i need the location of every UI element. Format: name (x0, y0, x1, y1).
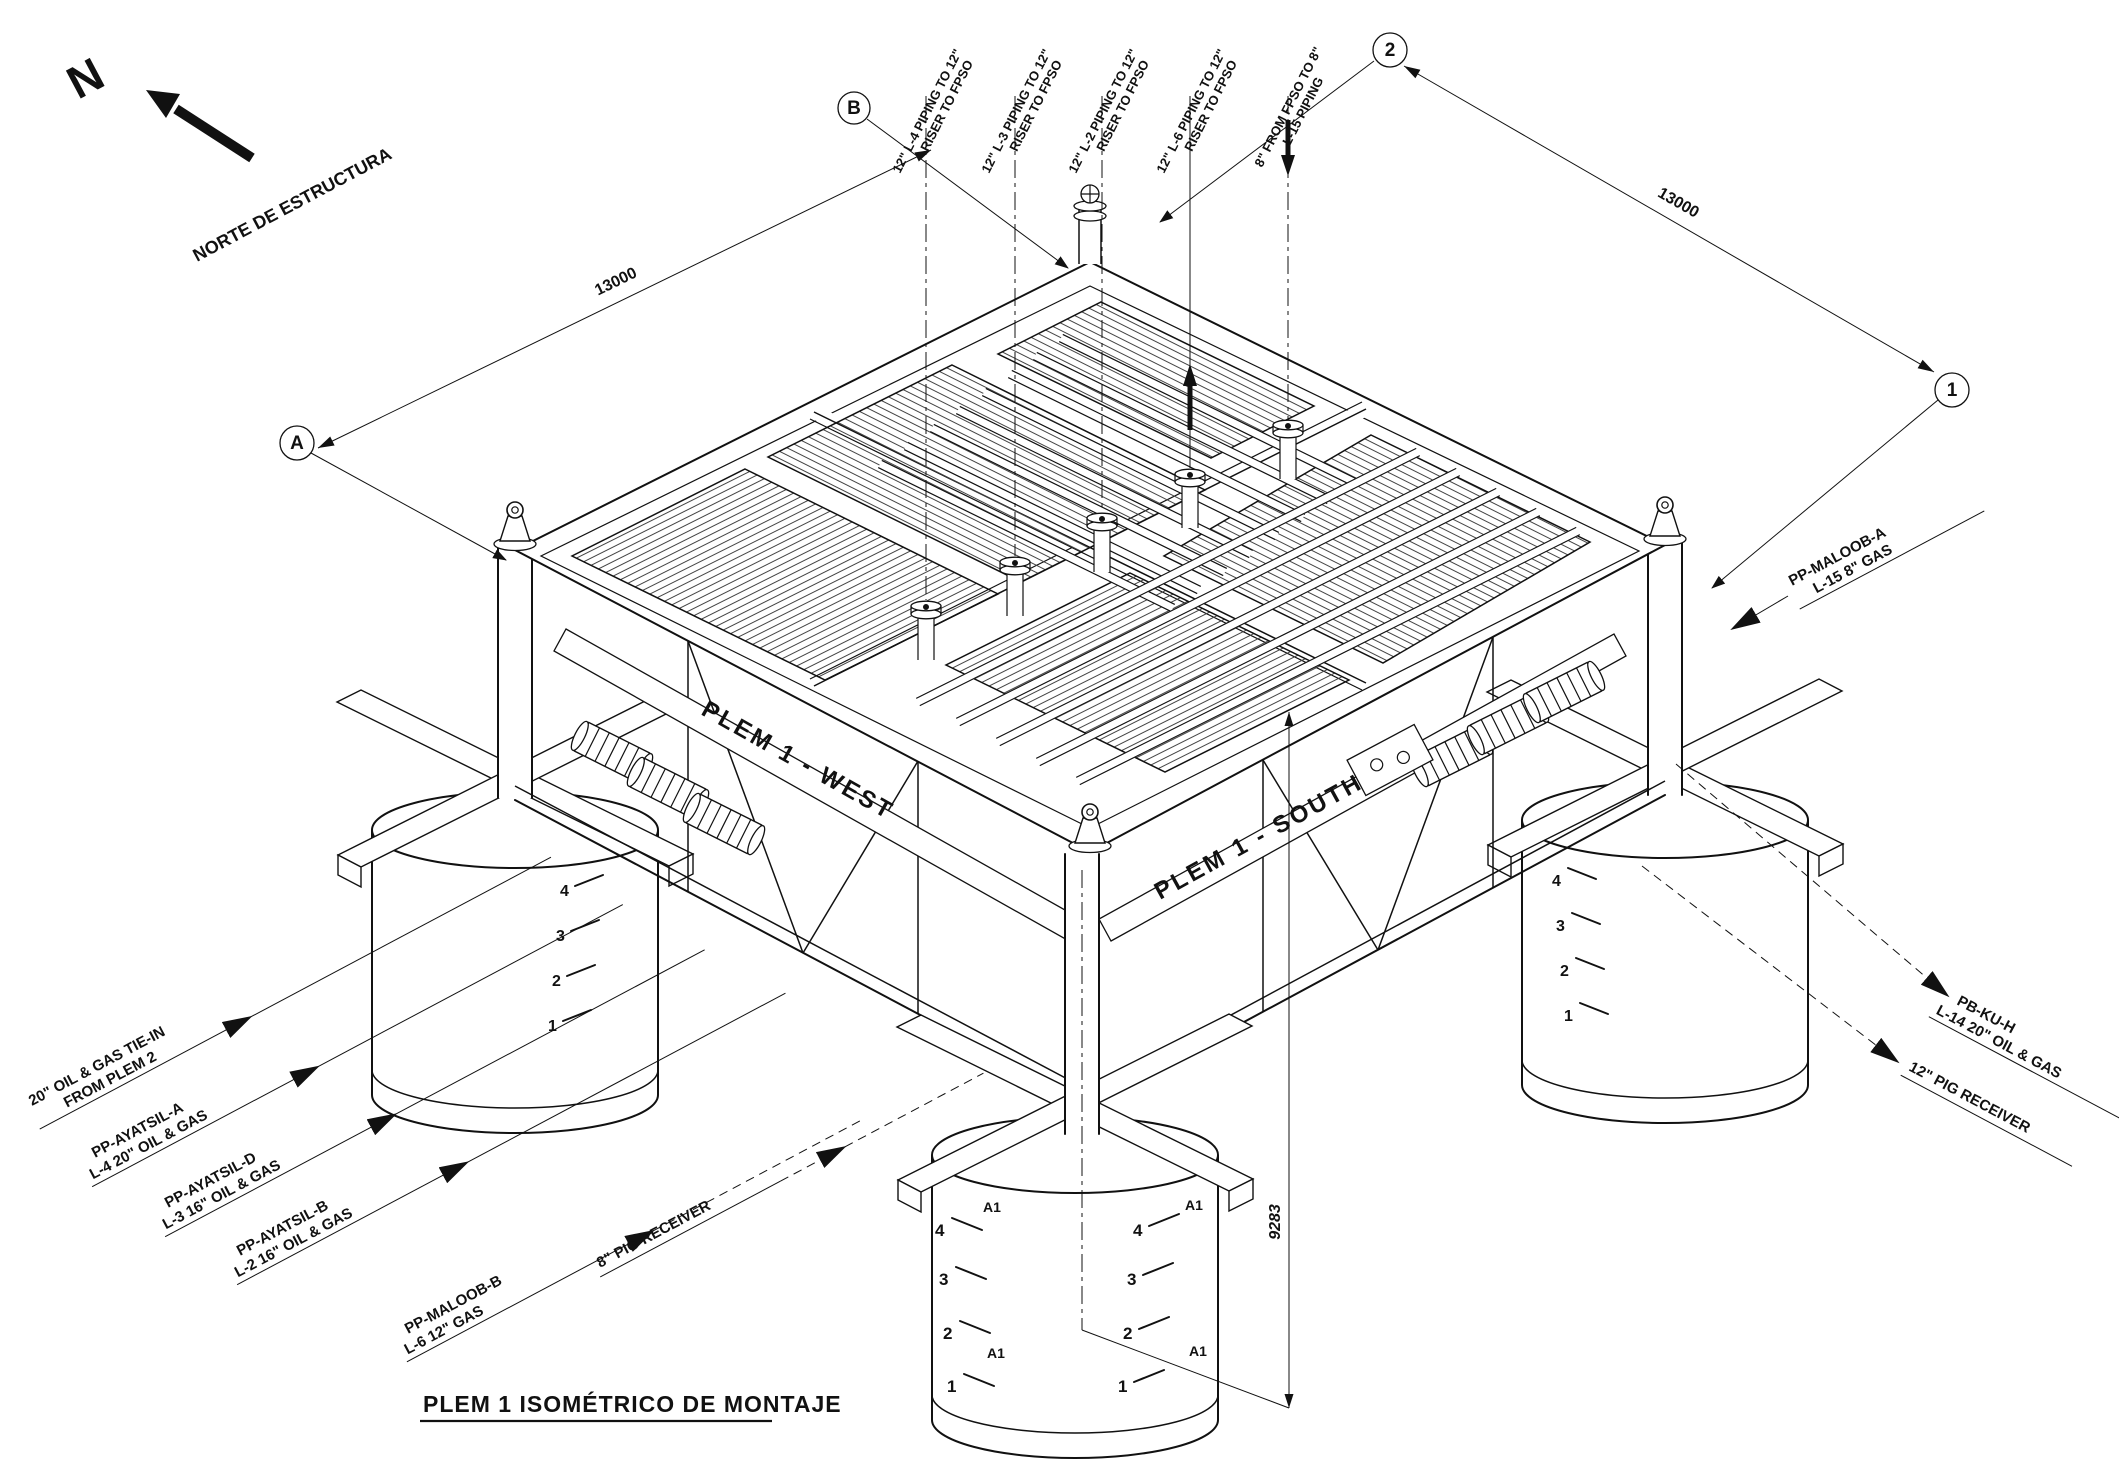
svg-text:12" L-6 PIPING TO 12": 12" L-6 PIPING TO 12" (1153, 46, 1229, 175)
svg-text:4: 4 (1552, 873, 1561, 890)
svg-text:A1: A1 (1185, 1197, 1203, 1213)
svg-text:4: 4 (1133, 1221, 1143, 1240)
svg-text:A: A (290, 433, 304, 454)
grid-bubble-a: A (280, 426, 506, 560)
north-letter: N (58, 47, 112, 109)
riser-label-l6: 12" L-6 PIPING TO 12" RISER TO FPSO (1153, 46, 1242, 182)
north-arrow-shaft (176, 109, 252, 158)
svg-text:2: 2 (943, 1324, 952, 1343)
svg-text:B: B (847, 98, 861, 119)
riser-label-l3: 12" L-3 PIPING TO 12" RISER TO FPSO (978, 46, 1067, 182)
riser-label-l15: 8" FROM FPSO TO 8" L-15 PIPING (1251, 44, 1338, 176)
svg-text:12" L-2 PIPING TO 12": 12" L-2 PIPING TO 12" (1065, 46, 1141, 175)
svg-text:2: 2 (1560, 963, 1569, 980)
label-maloob-a: PP-MALOOB-A L-15 8" GAS (1732, 478, 1984, 629)
svg-text:1: 1 (1947, 380, 1958, 401)
svg-text:2: 2 (552, 973, 561, 990)
riser-label-l2: 12" L-2 PIPING TO 12" RISER TO FPSO (1065, 46, 1154, 182)
svg-text:12" L-3 PIPING TO 12": 12" L-3 PIPING TO 12" (978, 46, 1054, 175)
svg-text:2: 2 (1385, 40, 1396, 61)
svg-text:12" PIG RECEIVER: 12" PIG RECEIVER (1906, 1059, 2033, 1137)
north-corner-riser (1074, 185, 1106, 264)
isometric-drawing: PLEM 1 - WEST PLEM 1 - SOUTH (0, 0, 2119, 1459)
svg-text:8" PIG RECEIVER: 8" PIG RECEIVER (594, 1197, 714, 1271)
north-compass: N NORTE DE ESTRUCTURA (58, 47, 395, 265)
svg-text:12" L-4 PIPING TO 12": 12" L-4 PIPING TO 12" (889, 46, 965, 175)
lifting-cone (494, 502, 536, 551)
drawing-sheet: PLEM 1 - WEST PLEM 1 - SOUTH (0, 0, 2119, 1459)
svg-text:13000: 13000 (592, 265, 640, 300)
flow-arrow-down-head (1281, 155, 1295, 176)
svg-text:9283: 9283 (1267, 1204, 1284, 1240)
svg-text:13000: 13000 (1655, 185, 1702, 222)
lifting-cone (1644, 497, 1686, 546)
svg-text:3: 3 (1556, 918, 1565, 935)
svg-text:A1: A1 (983, 1199, 1001, 1215)
svg-text:4: 4 (935, 1221, 945, 1240)
north-label: NORTE DE ESTRUCTURA (189, 144, 394, 266)
svg-text:3: 3 (939, 1270, 948, 1289)
riser-label-l4: 12" L-4 PIPING TO 12" RISER TO FPSO (889, 46, 978, 182)
svg-text:A1: A1 (987, 1345, 1005, 1361)
svg-text:A1: A1 (1189, 1343, 1207, 1359)
view-title: PLEM 1 ISOMÉTRICO DE MONTAJE (420, 1390, 842, 1421)
svg-text:3: 3 (1127, 1270, 1136, 1289)
leg-west (498, 548, 532, 798)
svg-text:1: 1 (1564, 1008, 1573, 1025)
dimension-right-13000: 13000 (1404, 66, 1934, 372)
svg-text:4: 4 (560, 883, 569, 900)
svg-text:PLEM 1 ISOMÉTRICO DE MONTAJE: PLEM 1 ISOMÉTRICO DE MONTAJE (423, 1390, 842, 1417)
svg-text:2: 2 (1123, 1324, 1132, 1343)
expansion-bellows (680, 791, 768, 856)
leg-east (1648, 543, 1682, 795)
svg-text:1: 1 (1118, 1377, 1127, 1396)
svg-text:1: 1 (947, 1377, 956, 1396)
